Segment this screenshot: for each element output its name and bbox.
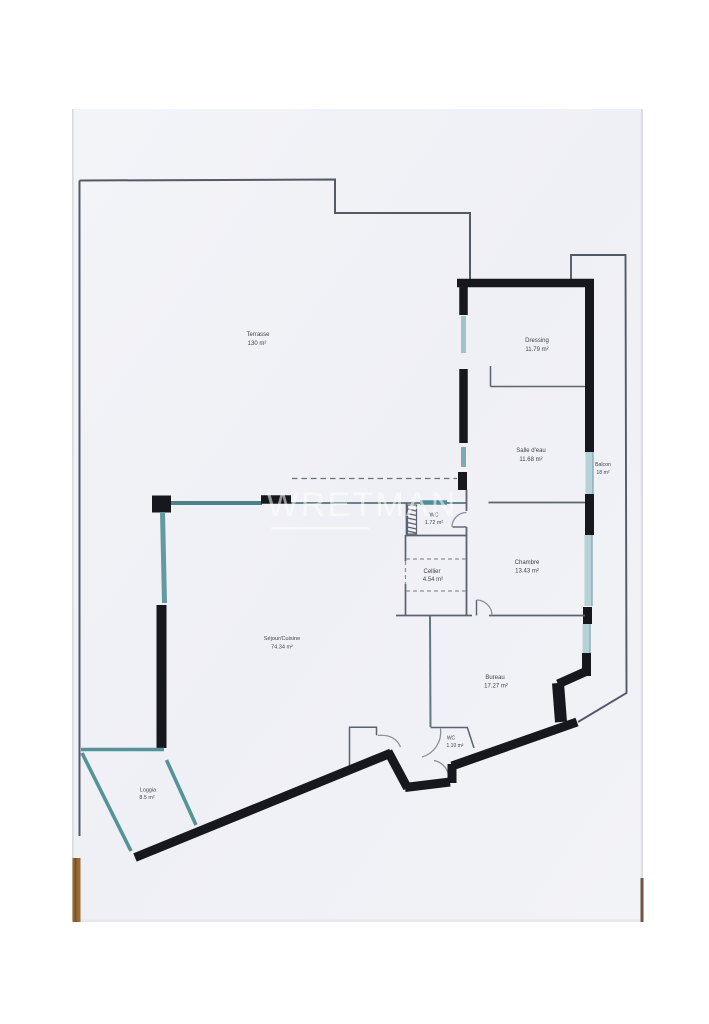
svg-text:Terrasse: Terrasse (246, 332, 270, 338)
svg-text:Dressing: Dressing (525, 338, 549, 344)
svg-text:Balcon: Balcon (595, 462, 611, 468)
svg-text:74.34 m²: 74.34 m² (271, 645, 293, 651)
svg-text:Cellier: Cellier (423, 569, 440, 575)
svg-text:8.5 m²: 8.5 m² (139, 795, 154, 801)
svg-text:Salle d'eau: Salle d'eau (516, 448, 546, 454)
svg-text:WC: WC (447, 736, 456, 742)
svg-text:Séjour/Cuisine: Séjour/Cuisine (264, 636, 300, 642)
svg-text:17.27 m²: 17.27 m² (484, 684, 508, 690)
svg-text:Bureau: Bureau (485, 675, 504, 681)
svg-text:11.79 m²: 11.79 m² (525, 347, 548, 353)
svg-text:1.10 m²: 1.10 m² (447, 743, 464, 749)
svg-text:Chambre: Chambre (515, 560, 540, 566)
svg-text:13.43 m²: 13.43 m² (515, 569, 539, 575)
svg-text:Loggia: Loggia (140, 788, 156, 794)
svg-text:18 m²: 18 m² (596, 470, 610, 476)
svg-text:WRETMAN: WRETMAN (266, 486, 457, 524)
svg-text:11.68 m²: 11.68 m² (519, 457, 542, 463)
svg-text:130 m²: 130 m² (248, 341, 267, 347)
svg-text:4.54 m²: 4.54 m² (423, 577, 443, 583)
